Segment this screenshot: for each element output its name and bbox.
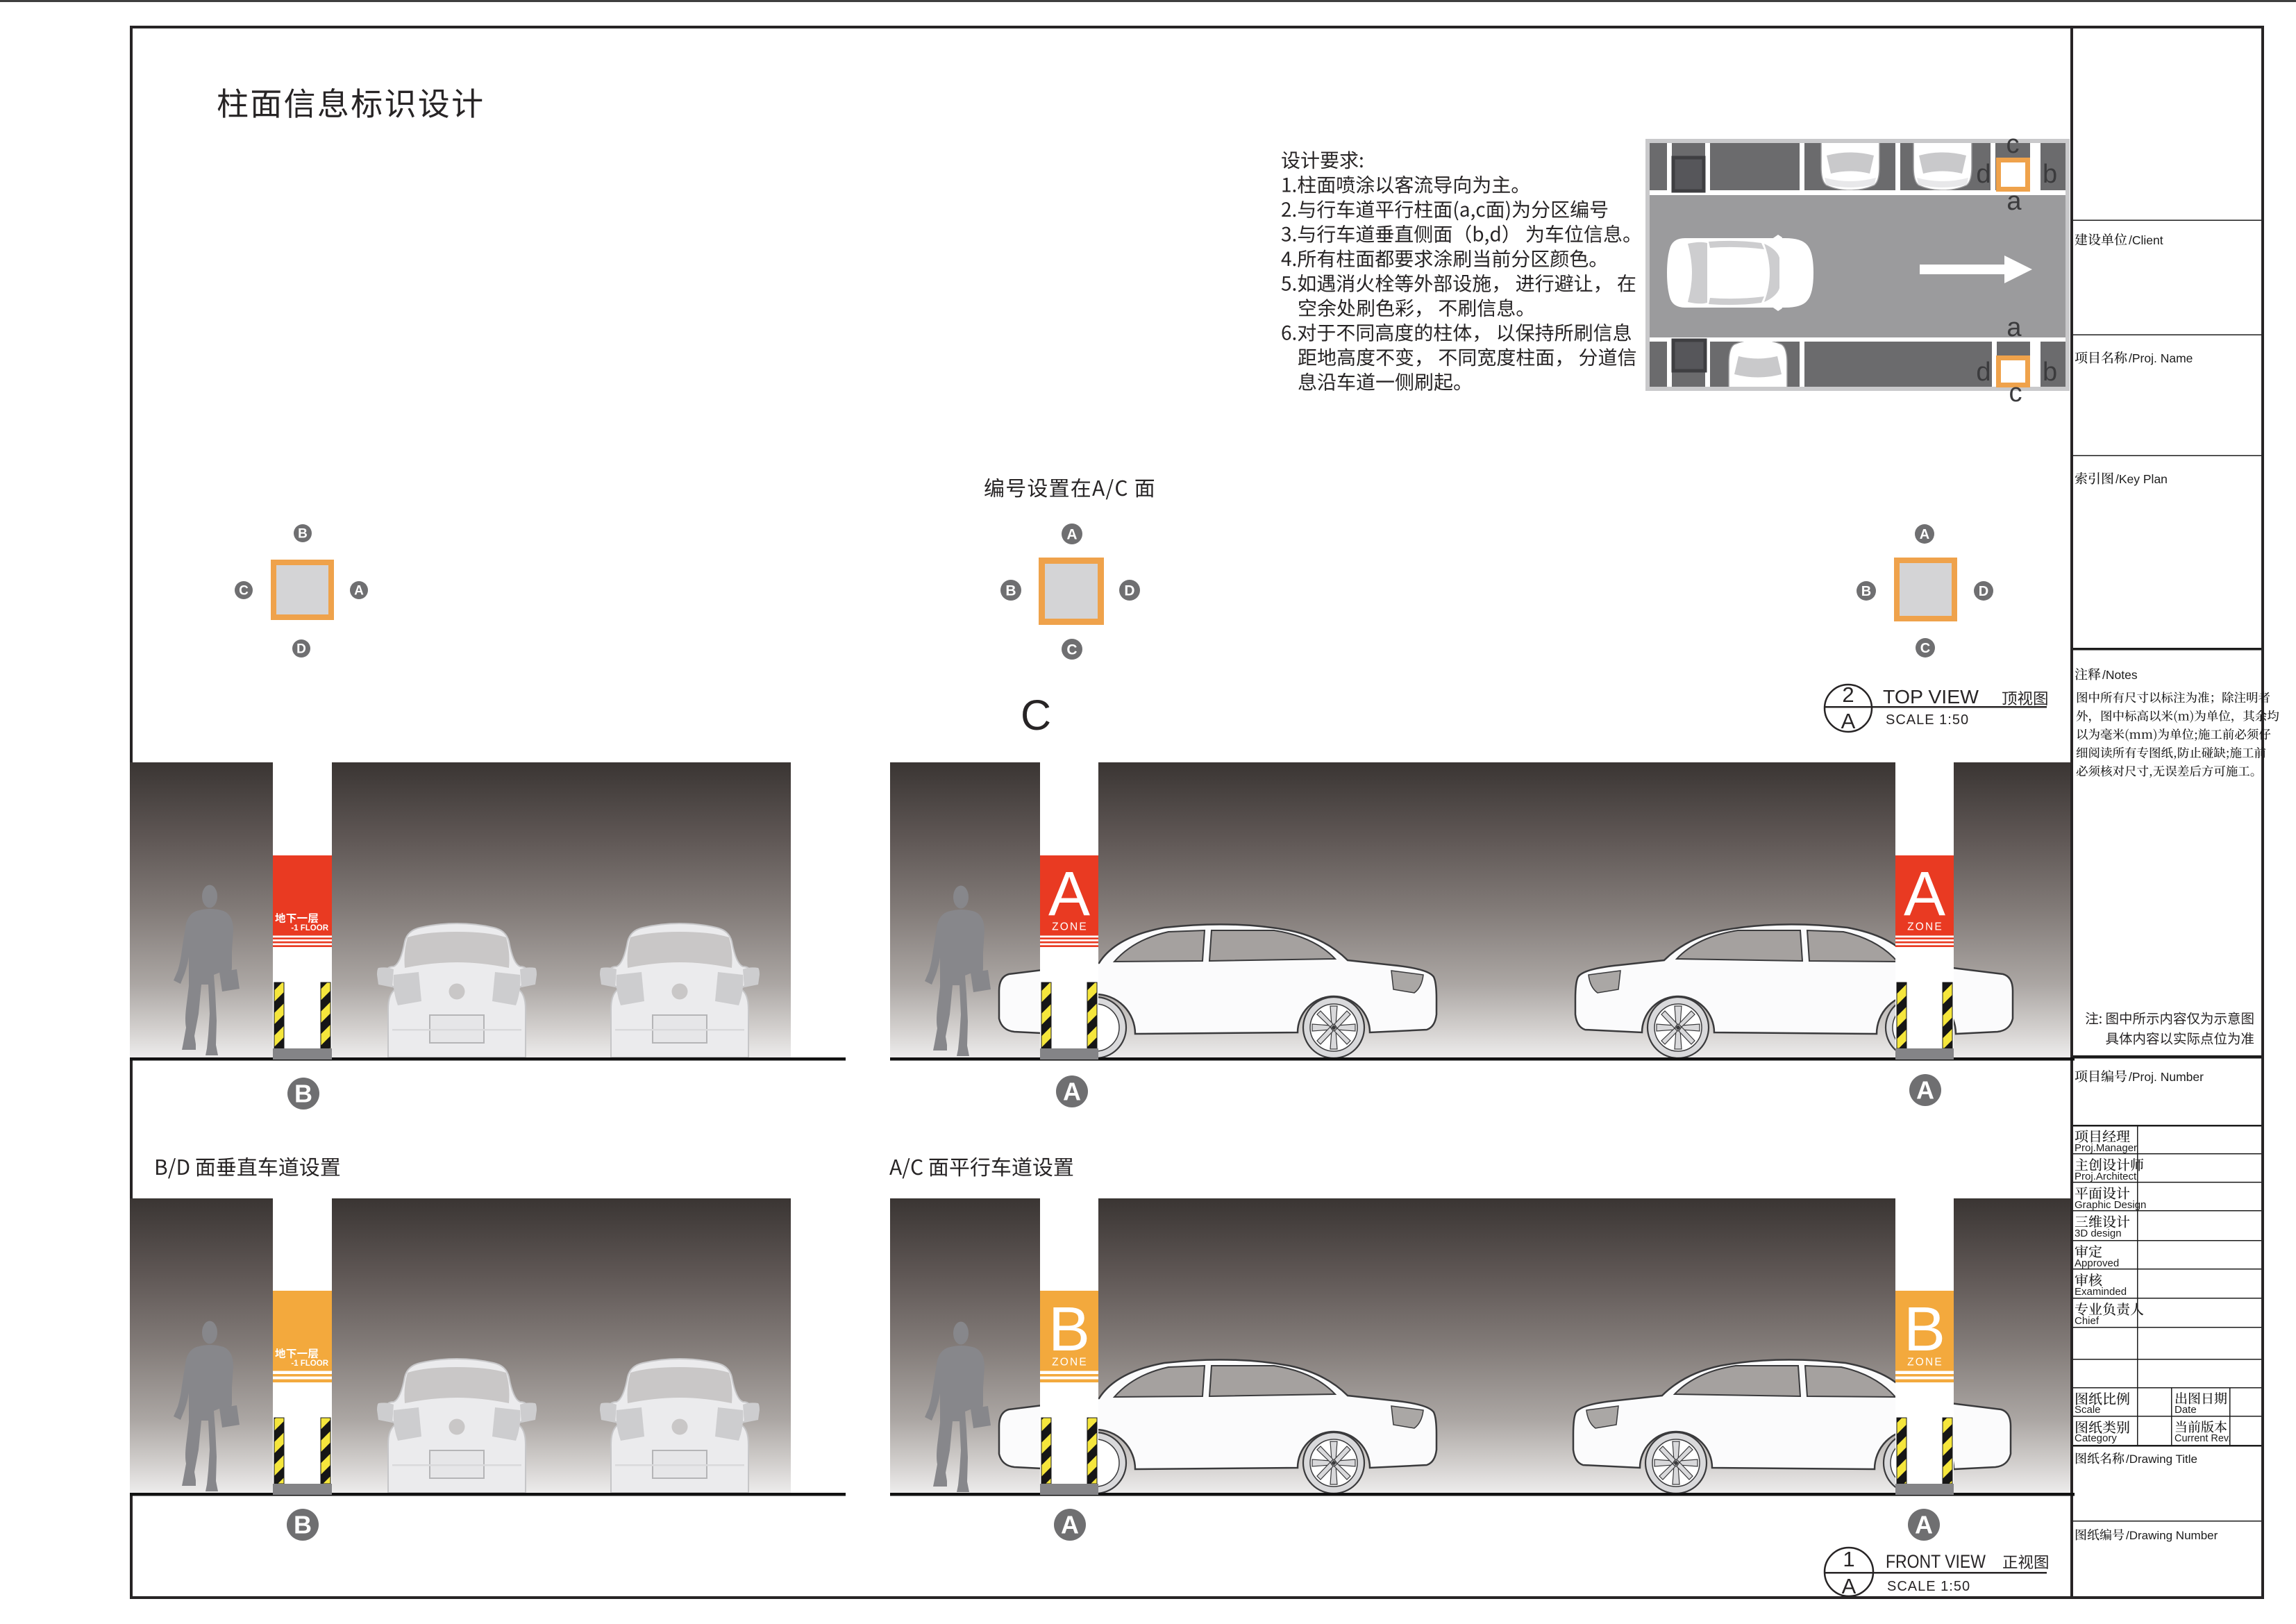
svg-text:A: A — [1063, 1078, 1081, 1106]
svg-text:A: A — [1048, 860, 1090, 929]
svg-text:A: A — [1061, 1511, 1079, 1539]
svg-text:Proj.Manager: Proj.Manager — [2075, 1142, 2137, 1154]
svg-text:ZONE: ZONE — [1907, 1357, 1943, 1368]
svg-text:b: b — [2043, 160, 2057, 189]
svg-text:FRONT VIEW: FRONT VIEW — [1886, 1551, 1986, 1572]
svg-text:B: B — [294, 1511, 312, 1539]
svg-text:c: c — [2009, 378, 2022, 408]
svg-text:/Proj. Name: /Proj. Name — [2129, 351, 2193, 365]
svg-text:B: B — [1048, 1295, 1090, 1364]
svg-text:/Drawing Number: /Drawing Number — [2126, 1529, 2218, 1542]
svg-text:D: D — [296, 642, 306, 657]
svg-text:A: A — [1841, 709, 1856, 733]
svg-text:d: d — [1976, 160, 1991, 189]
svg-text:Proj.Architect: Proj.Architect — [2075, 1171, 2137, 1182]
svg-text:a: a — [2006, 187, 2022, 216]
svg-text:2: 2 — [1842, 683, 1854, 707]
svg-text:A: A — [1904, 860, 1945, 929]
svg-text:c: c — [2006, 130, 2020, 159]
svg-text:B: B — [1861, 584, 1871, 599]
svg-text:D: D — [1124, 583, 1134, 598]
svg-text:1: 1 — [1843, 1547, 1854, 1571]
svg-text:A: A — [1066, 526, 1077, 542]
svg-text:SCALE 1:50: SCALE 1:50 — [1887, 1579, 1970, 1594]
svg-text:A: A — [354, 584, 364, 598]
svg-text:/Proj. Number: /Proj. Number — [2129, 1070, 2204, 1084]
svg-text:Chief: Chief — [2075, 1315, 2100, 1327]
svg-text:ZONE: ZONE — [1907, 921, 1943, 933]
svg-text:d: d — [1976, 358, 1991, 387]
svg-text:B: B — [298, 527, 308, 542]
svg-text:/Notes: /Notes — [2102, 668, 2138, 682]
svg-text:A: A — [1920, 527, 1929, 542]
svg-text:B: B — [1904, 1295, 1945, 1364]
svg-text:Current Rev.: Current Rev. — [2175, 1433, 2231, 1444]
svg-text:/Drawing Title: /Drawing Title — [2126, 1453, 2197, 1466]
svg-text:-1 FLOOR: -1 FLOOR — [291, 924, 328, 932]
svg-text:Scale: Scale — [2075, 1404, 2101, 1416]
svg-text:C: C — [1920, 641, 1930, 656]
svg-text:TOP VIEW: TOP VIEW — [1883, 686, 1979, 708]
svg-text:-1 FLOOR: -1 FLOOR — [291, 1359, 328, 1368]
svg-text:ZONE: ZONE — [1052, 1357, 1088, 1368]
svg-text:D: D — [1979, 584, 1988, 599]
svg-text:b: b — [2043, 358, 2057, 387]
svg-text:Approved: Approved — [2075, 1257, 2119, 1269]
svg-text:B: B — [294, 1080, 312, 1108]
svg-text:SCALE 1:50: SCALE 1:50 — [1886, 712, 1969, 728]
svg-text:C: C — [239, 584, 249, 598]
svg-text:a: a — [2006, 313, 2022, 342]
svg-text:3D design: 3D design — [2075, 1228, 2122, 1239]
svg-text:A: A — [1916, 1076, 1934, 1105]
svg-text:ZONE: ZONE — [1052, 921, 1088, 933]
svg-text:C: C — [1066, 642, 1077, 658]
svg-text:B: B — [1005, 583, 1016, 598]
svg-text:Date: Date — [2175, 1404, 2197, 1416]
svg-text:C: C — [1021, 692, 1051, 739]
svg-text:Category: Category — [2075, 1432, 2117, 1444]
svg-text:A: A — [1842, 1574, 1857, 1598]
svg-text:/Client: /Client — [2129, 233, 2163, 247]
svg-text:A: A — [1915, 1511, 1933, 1539]
svg-text:/Key Plan: /Key Plan — [2115, 472, 2168, 486]
svg-text:Examinded: Examinded — [2075, 1286, 2127, 1298]
svg-text:Graphic Design: Graphic Design — [2075, 1199, 2146, 1211]
